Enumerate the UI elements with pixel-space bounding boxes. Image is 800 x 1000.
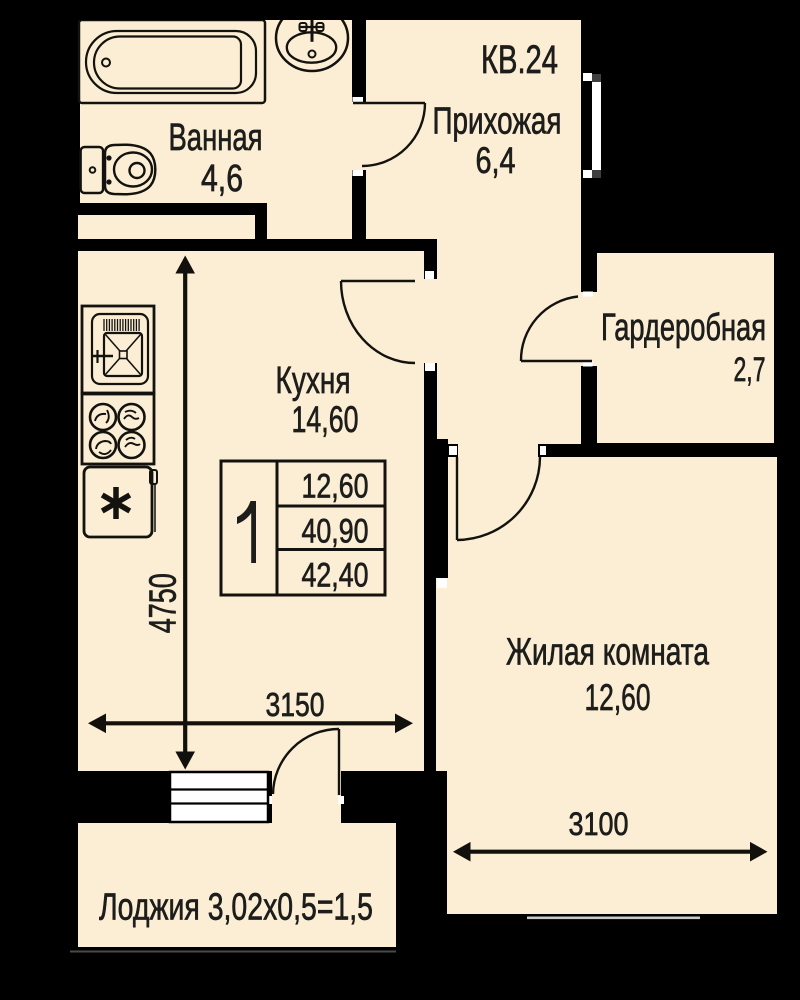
svg-text:12,60: 12,60 [585,677,651,718]
svg-text:6,4: 6,4 [476,140,516,181]
svg-text:4,6: 4,6 [201,158,243,200]
svg-text:14,60: 14,60 [292,399,359,440]
svg-text:КВ.24: КВ.24 [481,38,558,82]
svg-text:Гардеробная: Гардеробная [601,307,766,349]
svg-text:40,90: 40,90 [302,513,369,551]
svg-text:3100: 3100 [569,806,629,842]
svg-text:12,60: 12,60 [302,468,369,506]
svg-text:42,40: 42,40 [302,557,369,595]
svg-text:Кухня: Кухня [276,360,351,402]
svg-text:3150: 3150 [266,686,325,723]
svg-text:Жилая комната: Жилая комната [506,632,710,674]
svg-text:2,7: 2,7 [734,351,766,389]
svg-text:Лоджия 3,02х0,5=1,5: Лоджия 3,02х0,5=1,5 [99,887,373,929]
svg-text:4750: 4750 [143,573,185,633]
svg-text:Прихожая: Прихожая [433,101,562,143]
svg-text:Ванная: Ванная [169,117,263,159]
